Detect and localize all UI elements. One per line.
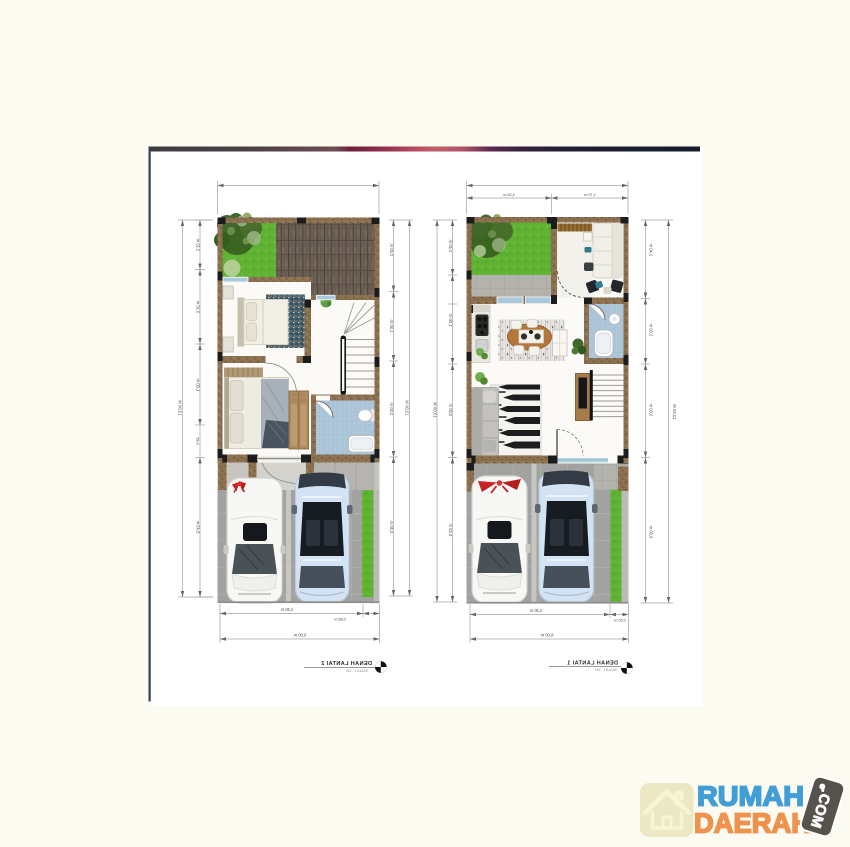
svg-text:3,30 m: 3,30 m	[389, 520, 394, 533]
svg-text:5,43 m: 5,43 m	[448, 523, 453, 536]
svg-text:1,00 m: 1,00 m	[196, 378, 201, 391]
svg-text:13,00 M: 13,00 M	[433, 402, 438, 418]
svg-text:2,40 m: 2,40 m	[649, 243, 654, 256]
svg-text:0,85 m: 0,85 m	[334, 618, 346, 622]
svg-text:6,00 m: 6,00 m	[540, 633, 553, 638]
svg-text:2,40 m: 2,40 m	[448, 239, 453, 252]
svg-text:13,00 M: 13,00 M	[405, 400, 410, 416]
svg-text:4,30 m: 4,30 m	[529, 608, 542, 613]
svg-text:4,30 m: 4,30 m	[280, 607, 293, 612]
svg-text:13,00 M: 13,00 M	[672, 404, 677, 420]
svg-text:1,00 m: 1,00 m	[448, 313, 453, 326]
svg-text:SKALA 1 : 100: SKALA 1 : 100	[346, 669, 368, 673]
svg-text:2,00 m: 2,00 m	[649, 323, 654, 336]
svg-text:1,50 m: 1,50 m	[389, 319, 394, 332]
svg-text:2,00 m: 2,00 m	[389, 402, 394, 415]
svg-text:4,30 m: 4,30 m	[503, 193, 515, 197]
svg-text:13,00 M: 13,00 M	[178, 400, 183, 416]
svg-text:1,70 m: 1,70 m	[584, 193, 596, 197]
svg-text:0,85: 0,85	[196, 437, 200, 444]
svg-text:2,10 m: 2,10 m	[196, 238, 201, 251]
svg-text:DAERAH: DAERAH	[694, 808, 811, 839]
svg-text:DENAH LANTAI 1: DENAH LANTAI 1	[567, 661, 618, 667]
svg-text:3,00 m: 3,00 m	[448, 403, 453, 416]
svg-text:2,40 m: 2,40 m	[389, 243, 394, 256]
svg-text:5,43 m: 5,43 m	[196, 520, 201, 533]
svg-text:DENAH LANTAI 2: DENAH LANTAI 2	[321, 661, 372, 667]
svg-text:3,00 m: 3,00 m	[649, 403, 654, 416]
svg-text:0,50 m: 0,50 m	[614, 619, 626, 623]
svg-text:6,00 m: 6,00 m	[293, 633, 306, 638]
svg-text:6,50 m: 6,50 m	[649, 525, 654, 538]
svg-text:SKALA 1 : 100: SKALA 1 : 100	[595, 668, 617, 672]
svg-text:3,10 m: 3,10 m	[196, 300, 201, 313]
